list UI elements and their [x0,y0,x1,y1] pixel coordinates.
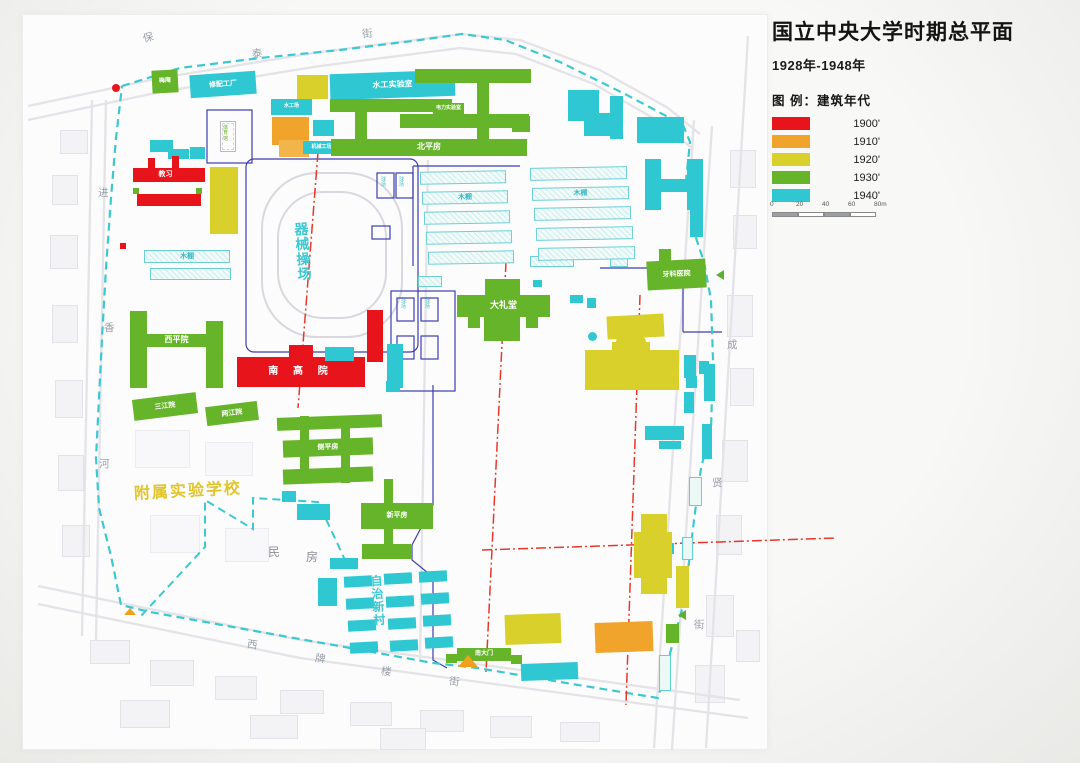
running-track [278,192,386,318]
boundary-notch [141,498,346,616]
scale-number: 60 [848,201,855,208]
axis-line [482,538,836,550]
courtyard-outline [397,336,414,359]
legend-title: 图 例：建筑年代 [772,90,890,109]
legend-item-label: 1900' [853,118,880,130]
legend-row: 1930' [772,171,880,184]
legend-color-chip [772,135,810,148]
scale-segment [798,212,824,217]
scale-number: 80m [874,201,887,208]
legend-rows: 1900'1910'1920'1930'1940' [772,117,890,202]
scale-number: 20 [796,201,803,208]
courtyard-outline [372,226,390,239]
courtyard-outline [421,336,438,359]
street-line [38,604,748,718]
scale-segment [850,212,876,217]
legend-color-chip [772,171,810,184]
scale-number: 40 [822,201,829,208]
legend-color-chip [772,153,810,166]
legend-color-chip [772,117,810,130]
street-line [420,160,428,662]
scale-segment [824,212,850,217]
street-line [654,120,694,748]
legend: 图 例：建筑年代 1900'1910'1920'1930'1940' [772,90,890,207]
axis-line [486,262,506,672]
axis-line [298,152,318,408]
legend-item-label: 1930' [853,172,880,184]
legend-row: 1920' [772,153,880,166]
legend-item-label: 1940' [853,190,880,202]
campus-boundary [96,34,713,698]
page-title: 国立中央大学时期总平面 [772,16,1072,46]
courtyard-outline [207,110,252,163]
courtyard-outline [396,173,413,198]
legend-item-label: 1920' [853,154,880,166]
street-line [38,586,740,700]
street-line [672,126,712,750]
street-line [82,100,92,636]
map-lines-layer [0,0,1080,763]
scale-segment [772,212,798,217]
scale-number: 0 [770,201,774,208]
legend-item-label: 1910' [853,136,880,148]
courtyard-outline [246,159,418,352]
legend-row: 1910' [772,135,880,148]
courtyard-outline [421,298,438,321]
title-block: 国立中央大学时期总平面 1928年-1948年 [772,16,1072,74]
courtyard-outline [391,291,455,391]
campus-map-page: 梅庵修配工厂水工实验室水工场机械工场北平房电力实验室教习房木棚西平院三江院两江院… [0,0,1080,763]
scale-bar: 020406080m [772,201,882,225]
courtyard-polyline [412,385,447,668]
street-line [28,48,692,148]
legend-row: 1900' [772,117,880,130]
page-subtitle: 1928年-1948年 [772,55,1072,74]
axis-line [626,295,640,705]
